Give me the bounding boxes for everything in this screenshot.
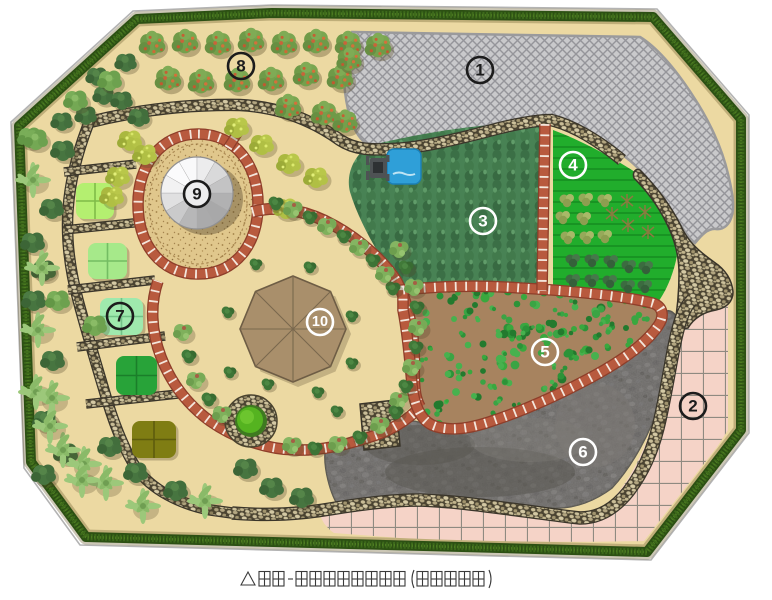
- svg-text:2: 2: [688, 397, 697, 416]
- svg-text:1: 1: [475, 61, 484, 80]
- svg-text:8: 8: [236, 57, 245, 76]
- svg-text:4: 4: [568, 156, 578, 175]
- svg-text:6: 6: [578, 443, 587, 462]
- svg-text:9: 9: [192, 185, 201, 204]
- svg-text:7: 7: [115, 307, 124, 326]
- svg-text:5: 5: [540, 343, 549, 362]
- svg-text:3: 3: [478, 212, 487, 231]
- svg-text:10: 10: [312, 314, 328, 330]
